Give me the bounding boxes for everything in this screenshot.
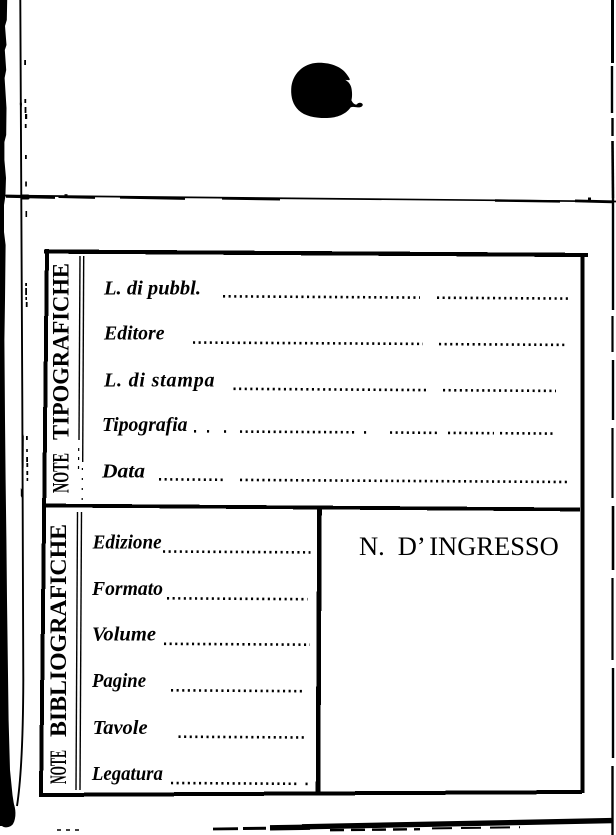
- svg-text:Data: Data: [101, 461, 145, 483]
- svg-text:TIPOGRAFICHE: TIPOGRAFICHE: [49, 263, 75, 440]
- svg-text:Formato: Formato: [91, 578, 163, 600]
- svg-text:BIBLIOGRAFICHE: BIBLIOGRAFICHE: [46, 524, 72, 737]
- svg-text:Tavole: Tavole: [93, 717, 148, 739]
- svg-text:Volume: Volume: [92, 624, 156, 646]
- svg-text:L. di pubbl.: L. di pubbl.: [103, 278, 201, 300]
- svg-text:Pagine: Pagine: [91, 670, 146, 692]
- svg-text:Editore: Editore: [103, 323, 165, 345]
- svg-text:Legatura: Legatura: [91, 763, 163, 785]
- svg-text:L. di stampa: L. di stampa: [103, 370, 215, 392]
- svg-text:Tipografia: Tipografia: [102, 414, 188, 436]
- svg-text:NOTE: NOTE: [49, 453, 75, 493]
- svg-text:NOTE: NOTE: [46, 750, 72, 784]
- svg-text:Edizione: Edizione: [92, 531, 162, 553]
